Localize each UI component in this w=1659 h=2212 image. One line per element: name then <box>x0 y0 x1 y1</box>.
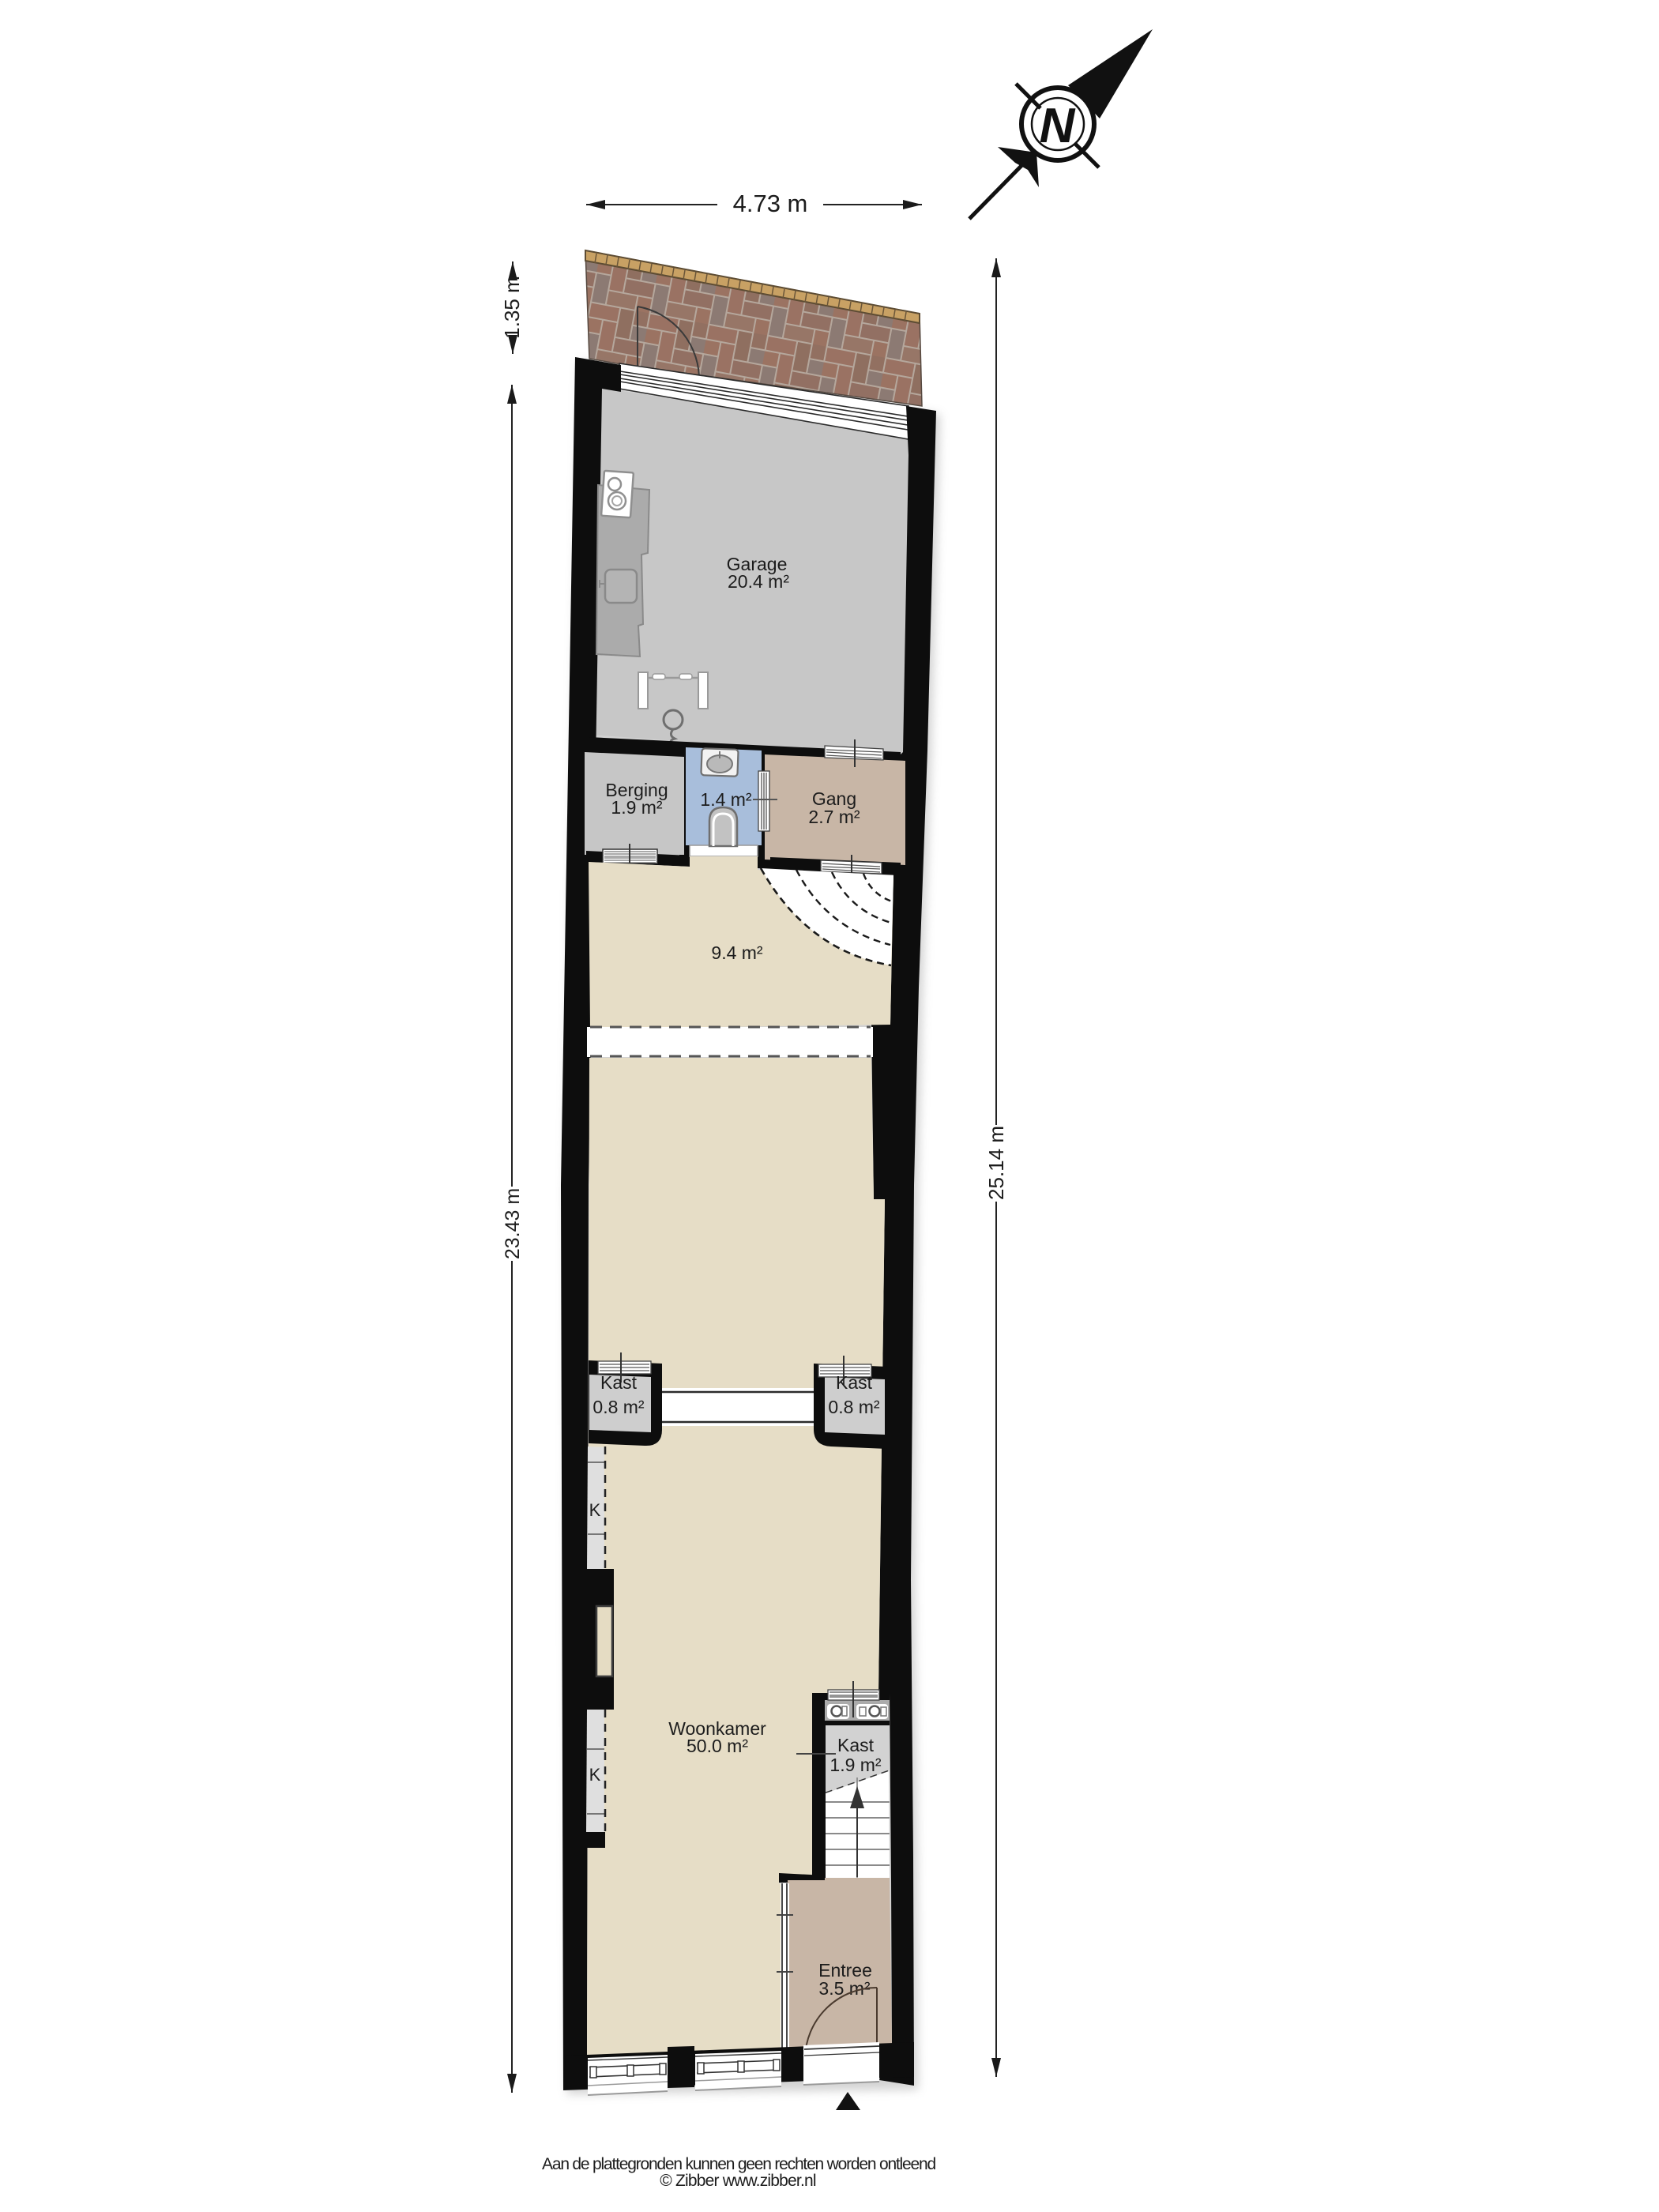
svg-text:Kast: Kast <box>836 1372 873 1393</box>
svg-text:1.35 m: 1.35 m <box>500 276 524 339</box>
svg-text:20.4 m²: 20.4 m² <box>728 571 789 592</box>
svg-text:1.9 m²: 1.9 m² <box>829 1755 882 1775</box>
svg-text:K: K <box>589 1500 601 1520</box>
svg-text:1.9 m²: 1.9 m² <box>611 797 663 818</box>
svg-text:© Zibber www.zibber.nl: © Zibber www.zibber.nl <box>660 2172 816 2190</box>
svg-text:2.7 m²: 2.7 m² <box>808 807 860 827</box>
svg-text:4.73 m: 4.73 m <box>733 190 808 217</box>
svg-text:0.8 m²: 0.8 m² <box>592 1397 645 1417</box>
svg-text:25.14 m: 25.14 m <box>984 1126 1008 1200</box>
svg-text:23.43 m: 23.43 m <box>502 1188 524 1259</box>
svg-text:Kast: Kast <box>600 1372 638 1393</box>
svg-text:9.4 m²: 9.4 m² <box>711 942 763 963</box>
svg-text:Aan de plattegronden kunnen ge: Aan de plattegronden kunnen geen rechten… <box>542 2155 935 2173</box>
svg-text:0.8 m²: 0.8 m² <box>828 1397 880 1417</box>
svg-text:Kast: Kast <box>837 1735 875 1755</box>
svg-text:50.0 m²: 50.0 m² <box>687 1736 748 1756</box>
svg-text:K: K <box>589 1765 601 1785</box>
svg-text:N: N <box>1040 99 1076 153</box>
